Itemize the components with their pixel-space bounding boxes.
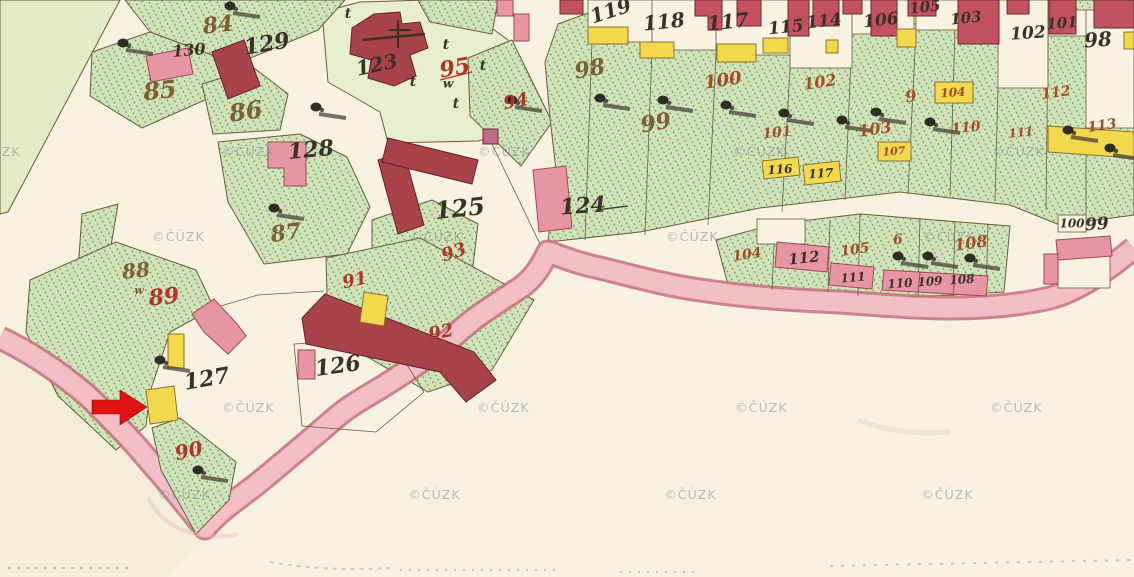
parcel-number-label: 95 xyxy=(437,53,472,84)
parcel-number-label: 116 xyxy=(767,162,794,178)
watermark: ©ČÚZK xyxy=(222,400,275,415)
watermark: ©ČÚZK xyxy=(0,144,21,159)
watermark: ©ČÚZK xyxy=(222,144,275,159)
parcel-number-label: 88 xyxy=(120,257,151,284)
watermark: ©ČÚZK xyxy=(990,400,1043,415)
parcel-number-label: t xyxy=(453,96,460,112)
parcel-number-label: t xyxy=(410,74,417,90)
parcel-number-label: 100 xyxy=(1059,217,1085,231)
parcel-number-label: 111 xyxy=(840,269,866,285)
parcel-number-label: 111 xyxy=(1008,124,1034,141)
watermark: ©ČÚZK xyxy=(477,400,530,415)
parcel-number-label: 102 xyxy=(1010,22,1047,44)
parcel-number-label: 84 xyxy=(200,10,234,39)
parcel-number-label: 6 xyxy=(892,232,903,249)
watermark: ©ČÚZK xyxy=(152,229,205,244)
parcel-number-label: 110 xyxy=(887,276,914,292)
cadastral-map-canvas[interactable]: ©ČÚZK©ČÚZK©ČÚZK©ČÚZK©ČÚZK©ČÚZK©ČÚZK©ČÚZK… xyxy=(0,0,1134,577)
building-126 xyxy=(298,350,315,379)
building-small-purple xyxy=(483,129,498,144)
parcel-number-label: 114 xyxy=(805,10,842,34)
parcel-number-label: 117 xyxy=(706,7,750,35)
building-near-94-a xyxy=(497,0,513,16)
watermark: ©ČÚZK xyxy=(921,487,974,502)
parcel-number-label: 118 xyxy=(642,7,686,35)
parcel-number-label: 86 xyxy=(226,94,264,128)
wooden-building-arrow-target xyxy=(146,386,178,424)
watermark: ©ČÚZK xyxy=(735,400,788,415)
parcel-number-label: 110 xyxy=(951,118,982,137)
parcel-number-label: t xyxy=(345,6,352,22)
parcel-number-label: 128 xyxy=(287,135,335,165)
parcel-number-label: w xyxy=(134,284,144,297)
watermark: ©ČÚZK xyxy=(408,487,461,502)
parcel-number-label: 103 xyxy=(949,7,982,28)
parcel-number-label: 101 xyxy=(1046,13,1078,33)
parcel-number-label: t xyxy=(443,37,450,53)
building-100-99-roof xyxy=(1056,236,1112,260)
watermark: ©ČÚZK xyxy=(992,144,1045,159)
parcel-number-label: 108 xyxy=(949,272,976,288)
parcel-number-label: t xyxy=(480,58,487,74)
parcel-number-label: 124 xyxy=(559,191,607,220)
parcel-number-label: 130 xyxy=(171,39,206,61)
watermark: ©ČÚZK xyxy=(666,229,719,244)
parcel-number-label: 99 xyxy=(1084,214,1109,236)
parcel-number-label: 109 xyxy=(917,274,944,290)
parcel-number-label: 117 xyxy=(808,166,835,182)
parcel-number-label: 115 xyxy=(767,16,804,40)
parcel-number-label: 85 xyxy=(141,74,178,106)
watermark: ©ČÚZK xyxy=(158,487,211,502)
cadastral-map-viewport: ©ČÚZK©ČÚZK©ČÚZK©ČÚZK©ČÚZK©ČÚZK©ČÚZK©ČÚZK… xyxy=(0,0,1134,577)
parcel-number-label: 98 xyxy=(1083,27,1113,53)
parcel-number-label: 87 xyxy=(268,218,304,248)
watermark: ©ČÚZK xyxy=(664,487,717,502)
watermark: ©ČÚZK xyxy=(733,144,786,159)
building-near-94-b xyxy=(514,14,529,41)
parcel-number-label: 92 xyxy=(427,320,455,345)
parcel-number-label: 98 xyxy=(572,54,607,85)
building-100-99-wing xyxy=(1044,254,1058,284)
parcel-number-label: 101 xyxy=(762,124,793,143)
parcel-number-label: 99 xyxy=(638,108,673,139)
parcel-number-label: 89 xyxy=(146,282,180,311)
watermark: ©ČÚZK xyxy=(478,144,531,159)
parcel-number-label: 106 xyxy=(862,9,900,33)
parcel-number-label: 94 xyxy=(502,89,530,114)
parcel-number-label: 107 xyxy=(882,144,906,159)
parcel-number-label: 112 xyxy=(787,247,820,268)
parcel-number-label: 104 xyxy=(940,85,966,101)
parcel-number-label: 125 xyxy=(433,191,486,225)
